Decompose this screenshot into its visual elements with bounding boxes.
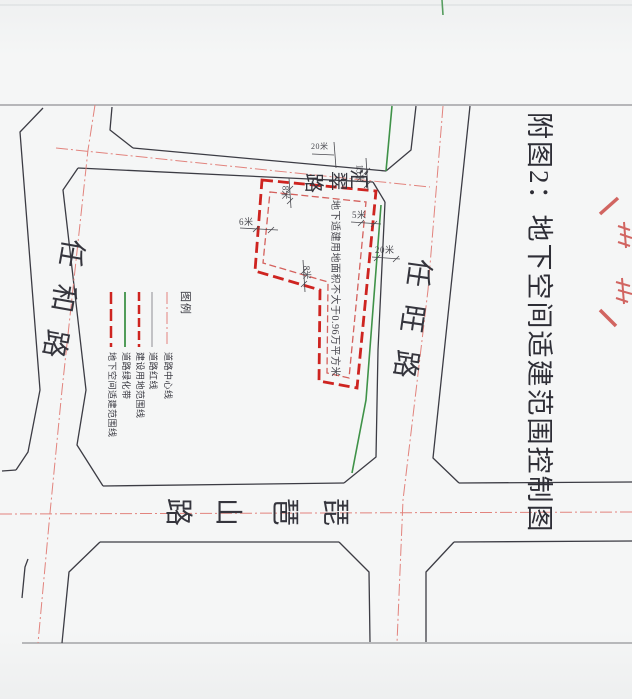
- legend-item-redline: 道路红线: [148, 352, 157, 390]
- parcel-area-note: 地下适建用地面积不大于0.96万平方米: [329, 200, 344, 377]
- dim-road-width: 20米: [311, 143, 329, 151]
- road-label-huicui-char: 翠: [326, 170, 348, 192]
- legend-item-greenbelt: 道路绿化带: [121, 352, 130, 400]
- scanned-plan-page: 附图2：地下空间适建范围控制图 任和路 任旺路 汇 翠 路 琵 琶 山 路 地下…: [0, 0, 632, 699]
- dim-top-offset: 8米: [279, 186, 292, 200]
- dim-road-clearance: 20米: [375, 246, 395, 255]
- legend-item-centerline: 道路中心线: [163, 352, 172, 400]
- dim-corner-offset: 15米: [354, 164, 367, 182]
- red-seal-fragment: [600, 198, 632, 326]
- dim-step-offset: 8米: [300, 266, 313, 280]
- dim-left-offset: 6米: [239, 218, 254, 227]
- road-label-pipashan-char: 琶: [269, 497, 299, 527]
- road-label-huicui-char: 路: [302, 172, 324, 194]
- green-belt-line: [352, 0, 443, 473]
- legend-item-underground-boundary: 地下空间适建范围线: [107, 352, 116, 438]
- legend-item-land-boundary: 建设用地范围线: [135, 352, 144, 419]
- road-label-pipashan-char: 山: [212, 497, 242, 527]
- legend-title: 图例: [178, 291, 194, 315]
- dim-right-offset: 5米: [352, 211, 367, 220]
- land-boundary-line: [263, 192, 366, 378]
- road-label-pipashan-char: 路: [162, 497, 192, 527]
- page-title: 附图2：地下空间适建范围控制图: [522, 112, 561, 534]
- road-label-pipashan-char: 琵: [319, 497, 349, 527]
